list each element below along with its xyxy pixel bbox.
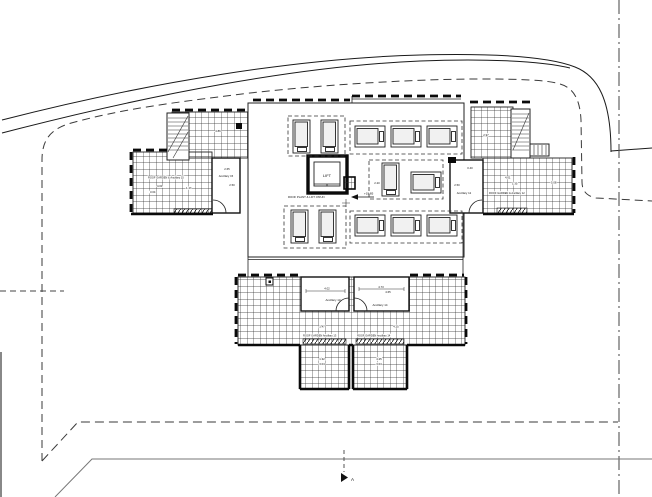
- solar-panel: [427, 126, 457, 147]
- dim-label: 4.73: [378, 285, 384, 289]
- garden-label: ROOF GARDEN & Ancillary 12: [489, 191, 525, 195]
- dim-label: 4.25: [393, 325, 399, 329]
- dim-label: 2.97: [483, 133, 489, 137]
- pier-right-room: [448, 157, 456, 163]
- dim-label: 1.47: [186, 186, 192, 190]
- dim-label: 4.02: [324, 287, 330, 291]
- dim-label: 4.65: [385, 290, 391, 294]
- solar-panel: [355, 126, 385, 147]
- solar-panel: [382, 163, 399, 196]
- dim-label: 3.04: [150, 190, 156, 194]
- dim-label: 1.47: [319, 325, 325, 329]
- solar-panel: [293, 120, 310, 153]
- solar-panel: [391, 215, 421, 236]
- dim-label: 1.32: [319, 357, 325, 361]
- garden-label: ROOF GARDEN Ancillary 14: [357, 334, 391, 338]
- lift-label: LIFT: [323, 173, 332, 178]
- drainage-strip-bottom-right: [356, 339, 404, 344]
- garden-label: ROOF GARDEN & Ancillary 15: [148, 176, 184, 180]
- dim-label: 2.50: [454, 183, 460, 187]
- roof-garden-hatch-bottom-band: [238, 277, 465, 345]
- room-label: Ancillary 14: [373, 303, 388, 307]
- solar-panel: [319, 210, 336, 243]
- roof-garden-hatch-upper-right: [471, 107, 513, 158]
- level-marker-label: +19.85: [364, 192, 374, 196]
- roof-garden-hatch-left: [133, 152, 212, 213]
- room-label: Ancillary 15: [219, 174, 234, 178]
- solar-panel: [427, 215, 457, 236]
- dim-label: 2.65: [224, 167, 230, 171]
- roof-terrace-hatch-right: [353, 345, 407, 389]
- dim-label: 1.35: [512, 182, 518, 186]
- roof-terrace-hatch-left: [300, 345, 349, 389]
- dim-label: 4.25: [376, 357, 382, 361]
- drainage-strip-right: [497, 208, 527, 213]
- lift-note-label: ROOF PLANT & LIFT O'RUN: [288, 195, 325, 199]
- solar-panel: [355, 215, 385, 236]
- roof-garden-hatch-right: [483, 158, 572, 213]
- drainage-strip-bottom-left: [303, 339, 346, 344]
- dim-label: 2.50: [229, 183, 235, 187]
- solar-panel: [411, 172, 441, 193]
- dim-label: 5.08: [551, 181, 557, 185]
- dim-label: 2.20: [374, 181, 380, 185]
- room-label: Ancillary 13: [326, 298, 341, 302]
- dim-label: 3.04: [319, 362, 325, 366]
- solar-panel: [391, 126, 421, 147]
- solar-panel: [291, 210, 308, 243]
- pier-bottom-band-core: [269, 281, 272, 284]
- solar-panel: [321, 120, 338, 153]
- pier-left-wing: [236, 123, 242, 129]
- room-label: Ancillary 12: [457, 191, 472, 195]
- dim-label: 4.86: [215, 129, 221, 133]
- garden-label: ROOF GARDEN Ancillary 13: [303, 334, 337, 338]
- roof-plan-drawing: A LIFT ROOF PLANT & LIFT O'RUN +19.85 An…: [0, 0, 652, 497]
- room-ancillary-bottom-left: [301, 277, 349, 311]
- section-marker-label: A: [351, 477, 354, 482]
- stair-right: [511, 109, 530, 158]
- lift-duct: [344, 177, 355, 189]
- dim-label: 4.01: [505, 176, 511, 180]
- dim-label: 4.01: [157, 184, 163, 188]
- roof-plan-canvas: A LIFT ROOF PLANT & LIFT O'RUN +19.85 An…: [0, 0, 652, 497]
- dim-label: 3.04: [376, 362, 382, 366]
- dim-label: 0.40: [467, 166, 473, 170]
